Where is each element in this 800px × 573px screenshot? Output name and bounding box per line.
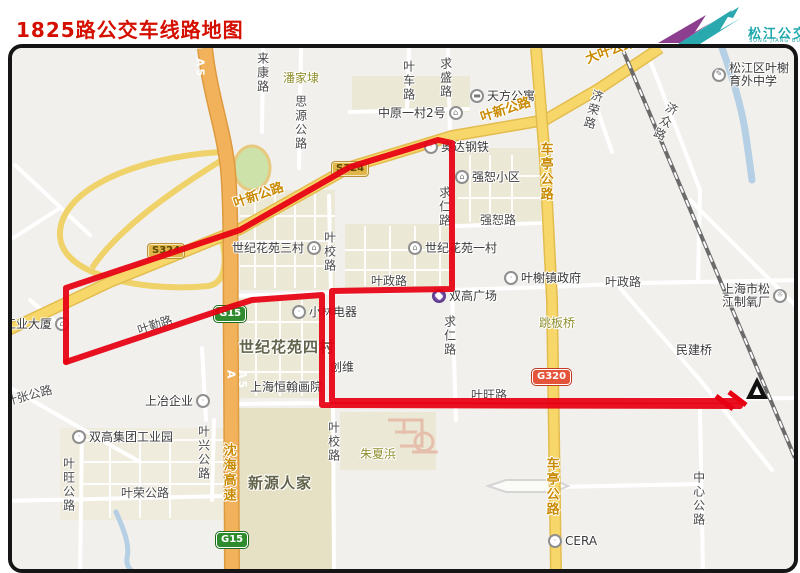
map-frame: 来康路潘家埭思源公路中原一村2号⌂▬天方公寓叶车路求盛路叶新公路叶新公路大叶公路… bbox=[8, 44, 798, 573]
bus-route-line bbox=[66, 295, 740, 406]
bus-route-line bbox=[66, 140, 740, 401]
bus-route-map-page: 1825路公交车线路地图 松江公交 SONG JIANG BUS bbox=[0, 0, 800, 573]
page-title: 1825路公交车线路地图 bbox=[16, 14, 244, 43]
bus-route-layer bbox=[8, 44, 798, 573]
map-canvas: 来康路潘家埭思源公路中原一村2号⌂▬天方公寓叶车路求盛路叶新公路叶新公路大叶公路… bbox=[8, 44, 798, 573]
songjiang-bus-logo: 松江公交 SONG JIANG BUS bbox=[640, 2, 796, 46]
